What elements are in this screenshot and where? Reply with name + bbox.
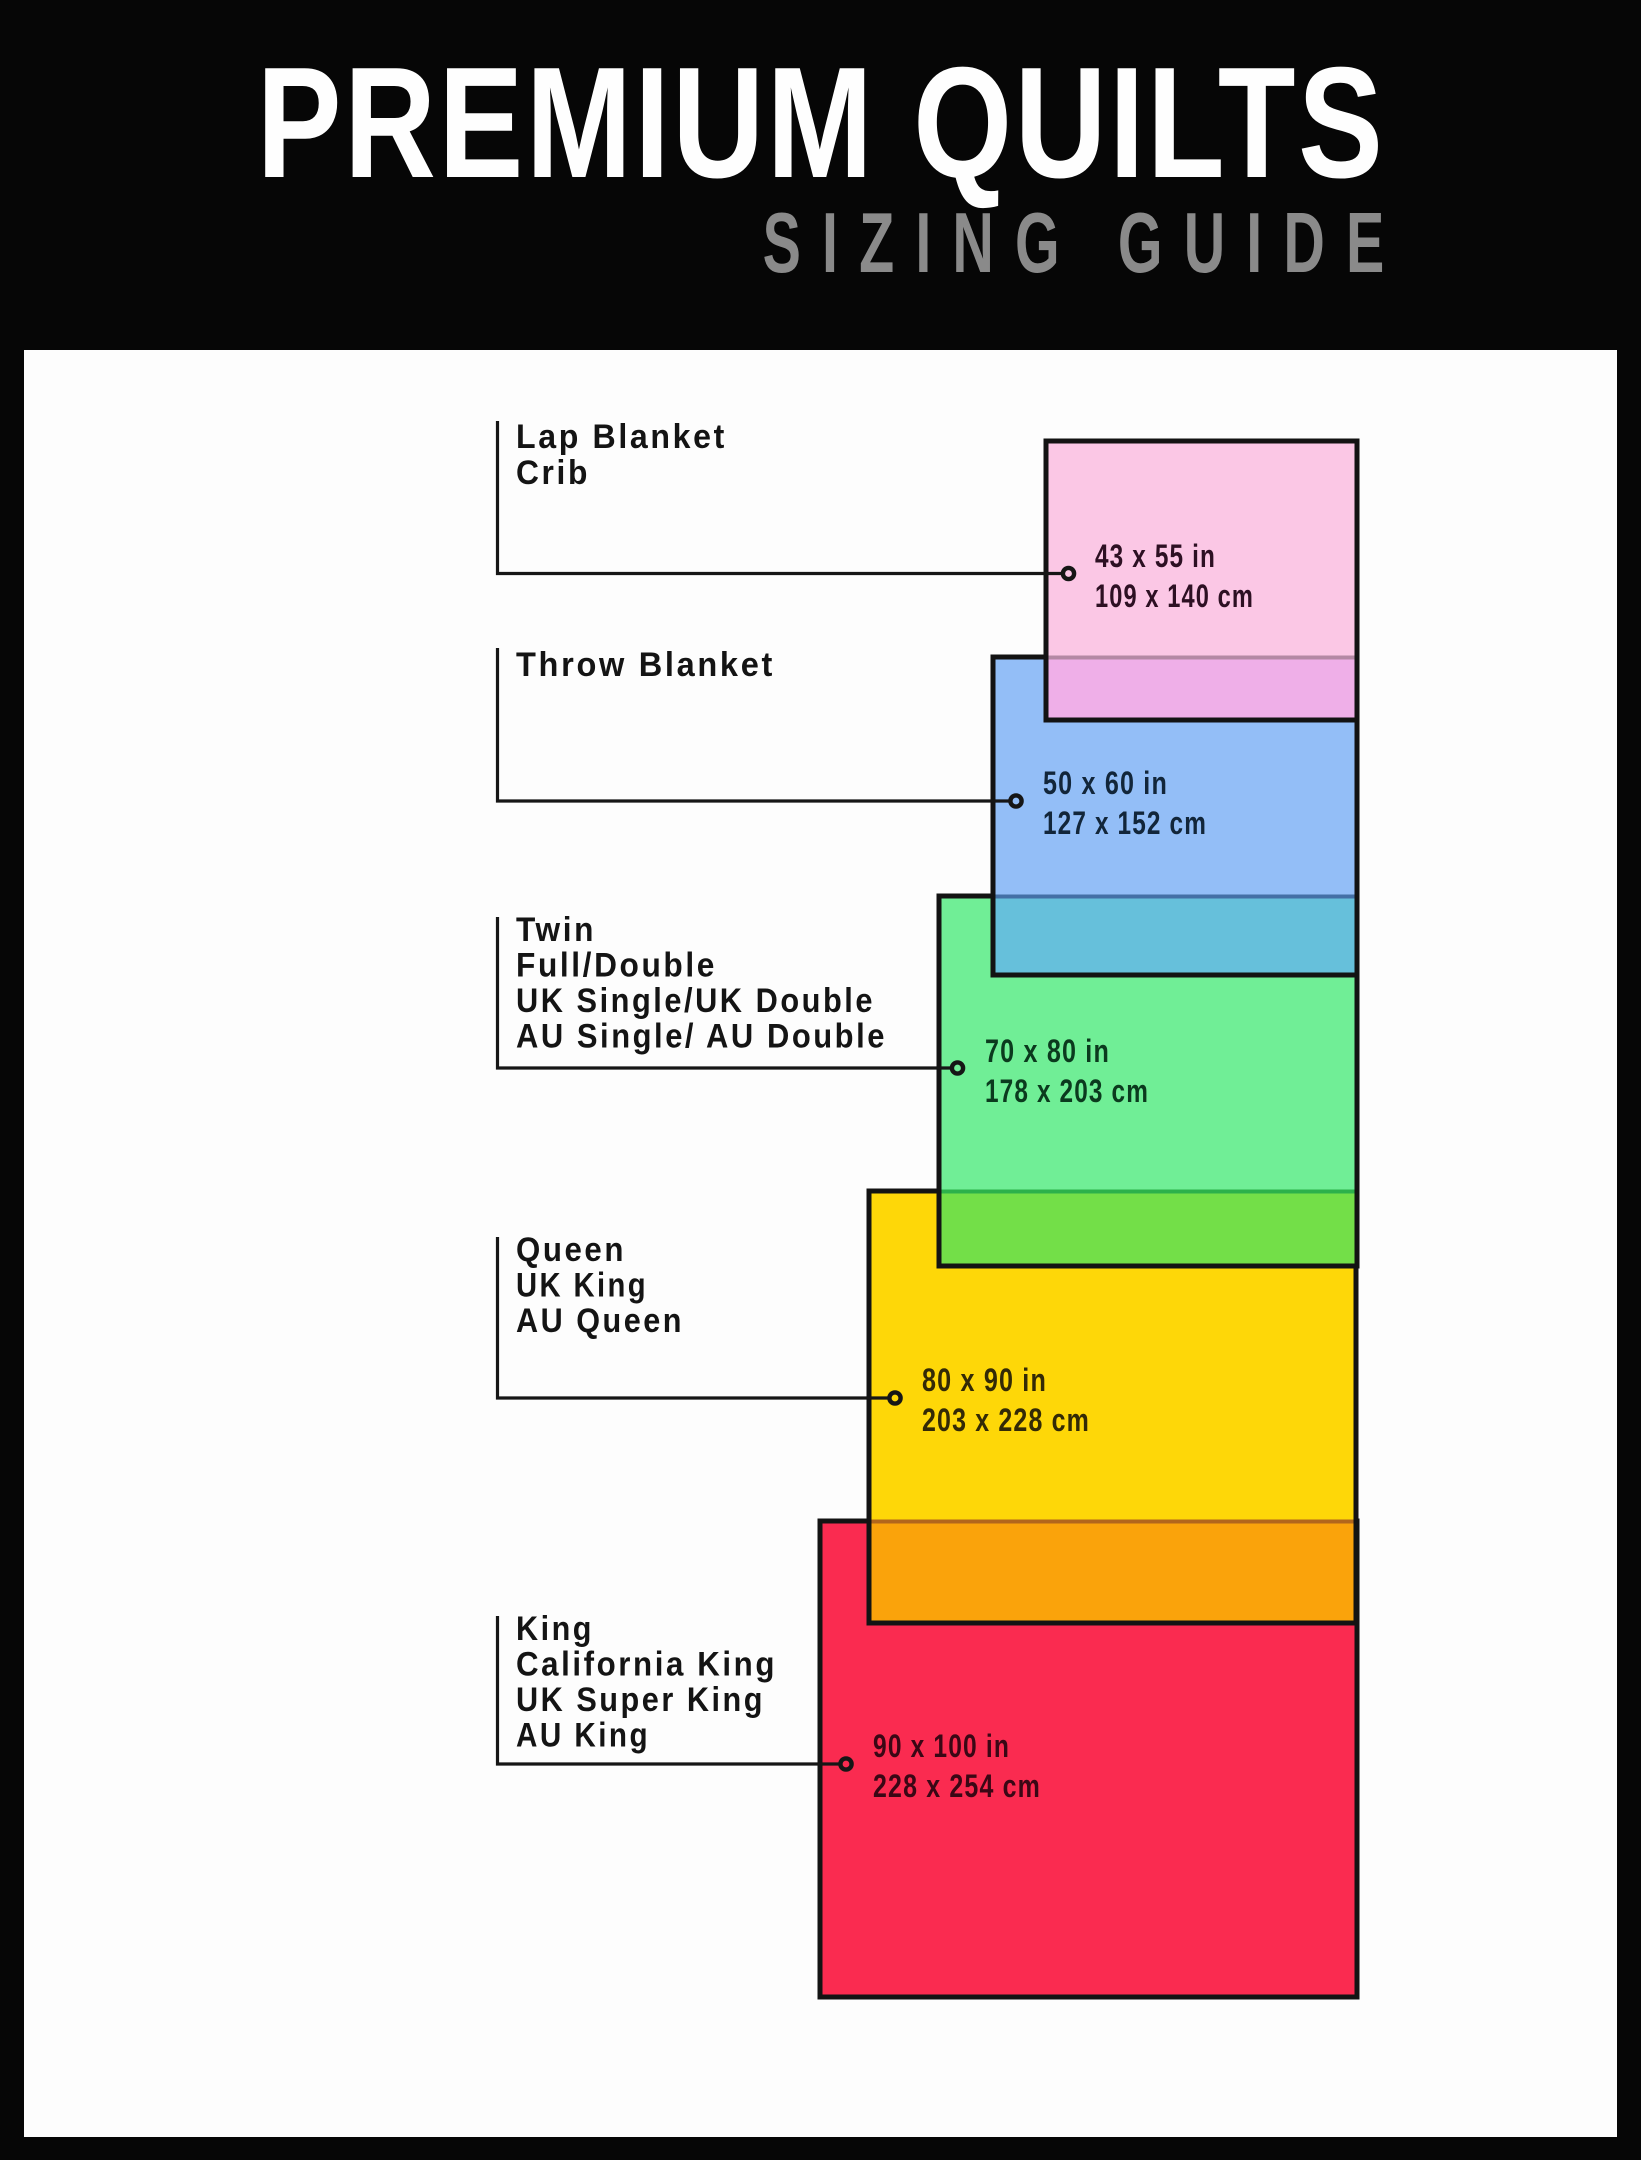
svg-text:228 x 254 cm: 228 x 254 cm bbox=[873, 1768, 1041, 1804]
svg-text:Throw Blanket: Throw Blanket bbox=[516, 646, 775, 684]
svg-text:SIZING GUIDE: SIZING GUIDE bbox=[763, 196, 1406, 291]
svg-text:50 x 60 in: 50 x 60 in bbox=[1043, 765, 1168, 801]
svg-text:Crib: Crib bbox=[516, 454, 590, 492]
svg-text:PREMIUM QUILTS: PREMIUM QUILTS bbox=[257, 35, 1386, 211]
svg-text:AU Queen: AU Queen bbox=[516, 1302, 684, 1340]
svg-text:Lap Blanket: Lap Blanket bbox=[516, 418, 727, 456]
svg-text:UK King: UK King bbox=[516, 1267, 648, 1305]
svg-text:70 x 80 in: 70 x 80 in bbox=[985, 1033, 1110, 1069]
svg-text:90 x 100 in: 90 x 100 in bbox=[873, 1728, 1010, 1764]
svg-text:80 x 90 in: 80 x 90 in bbox=[922, 1362, 1047, 1398]
svg-text:203 x 228 cm: 203 x 228 cm bbox=[922, 1402, 1090, 1438]
svg-text:Full/Double: Full/Double bbox=[516, 947, 717, 985]
svg-text:California King: California King bbox=[516, 1646, 777, 1684]
svg-text:Queen: Queen bbox=[516, 1231, 626, 1269]
svg-text:AU Single/ AU Double: AU Single/ AU Double bbox=[516, 1018, 887, 1056]
svg-text:178 x 203 cm: 178 x 203 cm bbox=[985, 1073, 1149, 1109]
svg-text:UK Single/UK Double: UK Single/UK Double bbox=[516, 982, 875, 1020]
svg-text:109 x 140 cm: 109 x 140 cm bbox=[1095, 578, 1254, 614]
svg-text:43 x 55 in: 43 x 55 in bbox=[1095, 538, 1216, 574]
svg-text:AU King: AU King bbox=[516, 1717, 650, 1755]
svg-text:King: King bbox=[516, 1610, 594, 1648]
svg-text:Twin: Twin bbox=[516, 911, 596, 949]
svg-text:127 x 152 cm: 127 x 152 cm bbox=[1043, 805, 1207, 841]
svg-text:UK Super King: UK Super King bbox=[516, 1681, 765, 1719]
